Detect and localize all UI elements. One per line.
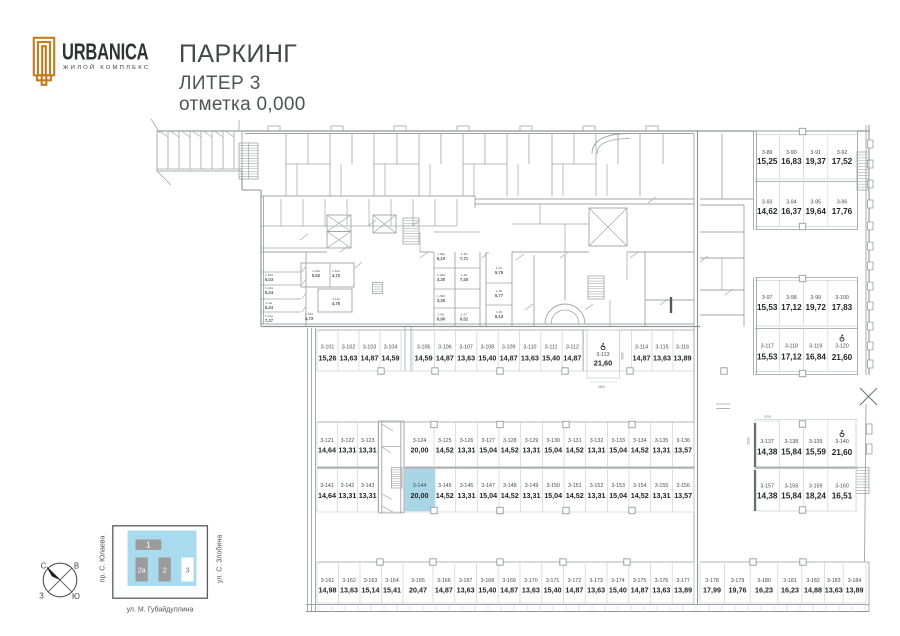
svg-text:21,60: 21,60 bbox=[594, 359, 613, 368]
svg-text:4,73: 4,73 bbox=[305, 316, 314, 321]
svg-text:13,89: 13,89 bbox=[674, 586, 692, 595]
svg-text:13,63: 13,63 bbox=[340, 354, 358, 363]
svg-text:13,31: 13,31 bbox=[523, 491, 541, 500]
svg-text:3-169: 3-169 bbox=[502, 578, 516, 584]
svg-text:14,64: 14,64 bbox=[318, 445, 336, 454]
svg-text:13,63: 13,63 bbox=[457, 354, 475, 363]
svg-text:15,04: 15,04 bbox=[479, 445, 497, 454]
svg-text:3-94: 3-94 bbox=[786, 199, 797, 205]
svg-text:3-164: 3-164 bbox=[385, 578, 399, 584]
svg-text:9,52: 9,52 bbox=[460, 317, 469, 322]
svg-text:15,53: 15,53 bbox=[757, 353, 778, 362]
svg-text:3-148: 3-148 bbox=[503, 483, 517, 489]
svg-text:3-100: 3-100 bbox=[835, 295, 849, 301]
svg-text:3-135: 3-135 bbox=[655, 438, 669, 444]
svg-text:15,40: 15,40 bbox=[478, 586, 496, 595]
svg-text:3-129: 3-129 bbox=[525, 438, 539, 444]
svg-text:3-160: 3-160 bbox=[835, 484, 849, 490]
svg-text:3-171: 3-171 bbox=[546, 578, 560, 584]
svg-text:15,04: 15,04 bbox=[609, 445, 627, 454]
svg-text:3-109: 3-109 bbox=[502, 345, 516, 351]
svg-text:3-147: 3-147 bbox=[481, 483, 495, 489]
svg-text:3-137: 3-137 bbox=[760, 439, 774, 445]
svg-text:5,52: 5,52 bbox=[312, 273, 321, 278]
svg-text:13,31: 13,31 bbox=[359, 445, 377, 454]
svg-text:13,63: 13,63 bbox=[457, 586, 475, 595]
svg-text:3-152: 3-152 bbox=[590, 483, 604, 489]
svg-text:3-121: 3-121 bbox=[320, 438, 334, 444]
svg-text:13,63: 13,63 bbox=[653, 354, 671, 363]
svg-text:17,52: 17,52 bbox=[832, 157, 853, 166]
svg-text:4,72: 4,72 bbox=[332, 273, 341, 278]
svg-text:14,52: 14,52 bbox=[501, 491, 519, 500]
svg-text:13,31: 13,31 bbox=[458, 491, 476, 500]
svg-text:3-95: 3-95 bbox=[810, 199, 821, 205]
svg-text:15,04: 15,04 bbox=[544, 445, 562, 454]
svg-text:14,88: 14,88 bbox=[804, 586, 822, 595]
svg-text:3-159: 3-159 bbox=[809, 484, 823, 490]
svg-text:3-89: 3-89 bbox=[762, 150, 773, 156]
svg-text:3-108: 3-108 bbox=[481, 345, 495, 351]
svg-text:6,90: 6,90 bbox=[437, 317, 446, 322]
svg-text:3-125: 3-125 bbox=[438, 438, 452, 444]
svg-text:3-113: 3-113 bbox=[596, 352, 609, 358]
svg-text:17,12: 17,12 bbox=[781, 353, 802, 362]
svg-text:5,77: 5,77 bbox=[495, 293, 504, 298]
svg-text:13,89: 13,89 bbox=[674, 354, 692, 363]
svg-text:13,31: 13,31 bbox=[523, 445, 541, 454]
svg-text:15,41: 15,41 bbox=[383, 586, 401, 595]
svg-text:3,30: 3,30 bbox=[437, 277, 446, 282]
svg-text:14,87: 14,87 bbox=[361, 354, 379, 363]
svg-text:17,12: 17,12 bbox=[781, 303, 802, 312]
svg-text:Ю: Ю bbox=[72, 592, 80, 601]
svg-text:15,40: 15,40 bbox=[609, 586, 627, 595]
svg-text:13,31: 13,31 bbox=[588, 445, 606, 454]
svg-text:3-128: 3-128 bbox=[503, 438, 517, 444]
svg-text:3-150: 3-150 bbox=[546, 483, 560, 489]
svg-text:3-178: 3-178 bbox=[705, 578, 719, 584]
svg-text:3-167: 3-167 bbox=[459, 578, 473, 584]
svg-text:13,31: 13,31 bbox=[359, 491, 377, 500]
svg-text:3-183: 3-183 bbox=[827, 578, 841, 584]
svg-text:З: З bbox=[39, 592, 44, 601]
svg-text:3-145: 3-145 bbox=[438, 483, 452, 489]
svg-text:3-180: 3-180 bbox=[757, 578, 771, 584]
svg-text:14,52: 14,52 bbox=[631, 445, 649, 454]
svg-text:3-126: 3-126 bbox=[460, 438, 474, 444]
svg-text:15,26: 15,26 bbox=[319, 354, 337, 363]
svg-text:3-120: 3-120 bbox=[835, 343, 849, 349]
svg-text:3-93: 3-93 bbox=[762, 199, 773, 205]
svg-text:пр. С. Юлаева: пр. С. Юлаева bbox=[100, 536, 107, 583]
svg-text:13,57: 13,57 bbox=[674, 445, 692, 454]
svg-text:14,87: 14,87 bbox=[435, 586, 453, 595]
svg-text:19,37: 19,37 bbox=[805, 157, 826, 166]
svg-text:3-149: 3-149 bbox=[525, 483, 539, 489]
svg-text:3-99: 3-99 bbox=[810, 295, 821, 301]
svg-text:13,31: 13,31 bbox=[458, 445, 476, 454]
svg-text:3-101: 3-101 bbox=[321, 345, 335, 351]
svg-text:3-166: 3-166 bbox=[437, 578, 451, 584]
svg-text:14,87: 14,87 bbox=[633, 354, 651, 363]
svg-text:14,59: 14,59 bbox=[382, 354, 400, 363]
svg-text:2: 2 bbox=[163, 565, 167, 574]
svg-text:3-119: 3-119 bbox=[809, 343, 822, 349]
svg-text:14,87: 14,87 bbox=[631, 586, 649, 595]
svg-text:3-132: 3-132 bbox=[590, 438, 604, 444]
svg-text:4,75: 4,75 bbox=[332, 301, 341, 306]
svg-text:3-107: 3-107 bbox=[459, 345, 473, 351]
svg-text:3-156: 3-156 bbox=[676, 483, 690, 489]
svg-text:3,30: 3,30 bbox=[437, 298, 446, 303]
svg-text:15,59: 15,59 bbox=[805, 448, 826, 457]
svg-text:3-157: 3-157 bbox=[760, 484, 774, 490]
svg-text:3-144: 3-144 bbox=[413, 483, 427, 489]
svg-text:15,14: 15,14 bbox=[362, 586, 380, 595]
svg-text:3-161: 3-161 bbox=[321, 578, 335, 584]
svg-text:15,40: 15,40 bbox=[544, 586, 562, 595]
svg-text:8,13: 8,13 bbox=[495, 314, 504, 319]
svg-text:3600: 3600 bbox=[598, 385, 605, 389]
svg-text:3-134: 3-134 bbox=[633, 438, 647, 444]
svg-text:15,84: 15,84 bbox=[781, 448, 802, 457]
svg-text:20,47: 20,47 bbox=[409, 586, 427, 595]
svg-text:1: 1 bbox=[146, 540, 151, 550]
svg-text:14,52: 14,52 bbox=[566, 491, 584, 500]
svg-text:3-106: 3-106 bbox=[438, 345, 452, 351]
svg-text:ул. М. Губайдуллина: ул. М. Губайдуллина bbox=[127, 606, 194, 614]
svg-text:14,52: 14,52 bbox=[501, 445, 519, 454]
svg-text:3-97: 3-97 bbox=[762, 295, 773, 301]
svg-text:3-181: 3-181 bbox=[783, 578, 797, 584]
svg-text:3-162: 3-162 bbox=[342, 578, 356, 584]
svg-text:16,37: 16,37 bbox=[781, 207, 802, 216]
svg-text:15,53: 15,53 bbox=[757, 303, 778, 312]
svg-text:14,38: 14,38 bbox=[757, 492, 778, 501]
svg-text:14,87: 14,87 bbox=[500, 586, 518, 595]
svg-text:13,31: 13,31 bbox=[653, 491, 671, 500]
svg-text:21,60: 21,60 bbox=[832, 353, 853, 362]
svg-text:15,04: 15,04 bbox=[609, 491, 627, 500]
svg-text:3-123: 3-123 bbox=[361, 438, 375, 444]
svg-text:17,99: 17,99 bbox=[703, 586, 721, 595]
svg-text:13,63: 13,63 bbox=[340, 586, 358, 595]
svg-text:3-133: 3-133 bbox=[611, 438, 625, 444]
svg-text:3-172: 3-172 bbox=[568, 578, 582, 584]
svg-text:13,63: 13,63 bbox=[652, 586, 670, 595]
svg-text:3-131: 3-131 bbox=[568, 438, 582, 444]
svg-text:6,10: 6,10 bbox=[437, 256, 446, 261]
svg-text:3-91: 3-91 bbox=[810, 150, 821, 156]
svg-text:14,64: 14,64 bbox=[318, 491, 336, 500]
svg-text:14,62: 14,62 bbox=[757, 207, 778, 216]
svg-text:3-168: 3-168 bbox=[481, 578, 495, 584]
svg-text:3-170: 3-170 bbox=[524, 578, 538, 584]
svg-text:7,40: 7,40 bbox=[460, 277, 469, 282]
svg-text:19,64: 19,64 bbox=[805, 207, 826, 216]
svg-text:14,87: 14,87 bbox=[563, 354, 581, 363]
svg-text:3-141: 3-141 bbox=[320, 483, 334, 489]
svg-text:2700: 2700 bbox=[764, 415, 771, 419]
svg-text:15,04: 15,04 bbox=[479, 491, 497, 500]
svg-text:17,83: 17,83 bbox=[832, 303, 853, 312]
svg-text:7,27: 7,27 bbox=[265, 318, 274, 323]
svg-text:3-105: 3-105 bbox=[417, 345, 431, 351]
svg-text:3-92: 3-92 bbox=[837, 150, 848, 156]
svg-text:3-173: 3-173 bbox=[589, 578, 603, 584]
svg-text:14,52: 14,52 bbox=[631, 491, 649, 500]
svg-text:3-182: 3-182 bbox=[806, 578, 820, 584]
svg-text:3-136: 3-136 bbox=[676, 438, 690, 444]
svg-text:3-127: 3-127 bbox=[481, 438, 495, 444]
svg-text:3-151: 3-151 bbox=[568, 483, 582, 489]
svg-text:3-116: 3-116 bbox=[676, 345, 689, 351]
svg-text:3-179: 3-179 bbox=[731, 578, 745, 584]
svg-text:3-104: 3-104 bbox=[384, 345, 398, 351]
svg-text:13,57: 13,57 bbox=[674, 491, 692, 500]
svg-text:15,25: 15,25 bbox=[757, 157, 778, 166]
svg-text:ул. С. Злобина: ул. С. Злобина bbox=[216, 535, 224, 583]
svg-text:16,23: 16,23 bbox=[781, 586, 799, 595]
svg-text:В: В bbox=[74, 562, 79, 571]
svg-text:13,31: 13,31 bbox=[338, 445, 356, 454]
svg-text:13,31: 13,31 bbox=[338, 491, 356, 500]
svg-text:19,76: 19,76 bbox=[729, 586, 747, 595]
svg-text:15,84: 15,84 bbox=[781, 492, 802, 501]
svg-text:5,24: 5,24 bbox=[265, 305, 274, 310]
svg-text:13,63: 13,63 bbox=[522, 586, 540, 595]
svg-text:3-138: 3-138 bbox=[785, 439, 799, 445]
svg-text:16,84: 16,84 bbox=[805, 353, 826, 362]
svg-text:3-184: 3-184 bbox=[848, 578, 862, 584]
svg-text:13,63: 13,63 bbox=[587, 586, 605, 595]
svg-text:7,71: 7,71 bbox=[460, 256, 469, 261]
svg-text:5,24: 5,24 bbox=[265, 290, 274, 295]
svg-text:3-139: 3-139 bbox=[809, 439, 823, 445]
svg-text:14,59: 14,59 bbox=[415, 354, 433, 363]
svg-text:3-114: 3-114 bbox=[635, 345, 648, 351]
svg-text:3-103: 3-103 bbox=[363, 345, 377, 351]
svg-text:5000: 5000 bbox=[747, 437, 751, 444]
svg-text:14,87: 14,87 bbox=[436, 354, 454, 363]
svg-text:3-98: 3-98 bbox=[786, 295, 797, 301]
svg-text:3-117: 3-117 bbox=[761, 343, 774, 349]
svg-text:15,40: 15,40 bbox=[478, 354, 496, 363]
svg-text:21,60: 21,60 bbox=[832, 448, 853, 457]
svg-text:3-111: 3-111 bbox=[545, 345, 558, 351]
svg-text:3-112: 3-112 bbox=[566, 345, 579, 351]
svg-text:3-174: 3-174 bbox=[611, 578, 625, 584]
svg-text:14,52: 14,52 bbox=[566, 445, 584, 454]
svg-text:3-176: 3-176 bbox=[655, 578, 669, 584]
svg-text:3-143: 3-143 bbox=[361, 483, 375, 489]
svg-text:5,75: 5,75 bbox=[495, 270, 504, 275]
svg-text:14,38: 14,38 bbox=[757, 448, 778, 457]
svg-text:3-142: 3-142 bbox=[341, 483, 355, 489]
svg-text:18,24: 18,24 bbox=[805, 492, 826, 501]
svg-text:14,98: 14,98 bbox=[319, 586, 337, 595]
svg-text:13,89: 13,89 bbox=[846, 586, 864, 595]
svg-text:2а: 2а bbox=[138, 565, 146, 574]
svg-text:16,23: 16,23 bbox=[755, 586, 773, 595]
svg-text:3-124: 3-124 bbox=[413, 438, 427, 444]
svg-text:3-102: 3-102 bbox=[342, 345, 356, 351]
svg-text:3-130: 3-130 bbox=[546, 438, 560, 444]
svg-text:20,00: 20,00 bbox=[411, 491, 429, 500]
svg-text:3-165: 3-165 bbox=[411, 578, 425, 584]
svg-text:3-163: 3-163 bbox=[364, 578, 378, 584]
svg-text:С: С bbox=[41, 562, 47, 571]
svg-text:16,51: 16,51 bbox=[832, 492, 853, 501]
svg-text:5,03: 5,03 bbox=[265, 277, 274, 282]
svg-text:19,72: 19,72 bbox=[805, 303, 826, 312]
svg-text:3-155: 3-155 bbox=[655, 483, 669, 489]
svg-text:17,76: 17,76 bbox=[832, 207, 853, 216]
svg-text:3: 3 bbox=[186, 565, 190, 574]
svg-text:3-153: 3-153 bbox=[611, 483, 625, 489]
svg-text:14,52: 14,52 bbox=[436, 445, 454, 454]
svg-text:13,63: 13,63 bbox=[521, 354, 539, 363]
svg-text:3-96: 3-96 bbox=[837, 199, 848, 205]
svg-text:20,00: 20,00 bbox=[411, 445, 429, 454]
svg-text:3-115: 3-115 bbox=[655, 345, 668, 351]
svg-text:15,40: 15,40 bbox=[542, 354, 560, 363]
svg-text:3-154: 3-154 bbox=[633, 483, 647, 489]
svg-text:15,04: 15,04 bbox=[544, 491, 562, 500]
svg-text:13,31: 13,31 bbox=[653, 445, 671, 454]
svg-text:3-175: 3-175 bbox=[633, 578, 647, 584]
svg-text:3-118: 3-118 bbox=[785, 343, 798, 349]
svg-text:13,31: 13,31 bbox=[588, 491, 606, 500]
svg-text:14,52: 14,52 bbox=[436, 491, 454, 500]
svg-text:3-146: 3-146 bbox=[460, 483, 474, 489]
svg-text:3-110: 3-110 bbox=[523, 345, 536, 351]
svg-text:3-140: 3-140 bbox=[835, 439, 849, 445]
svg-text:6000: 6000 bbox=[621, 352, 625, 359]
svg-text:3-177: 3-177 bbox=[676, 578, 690, 584]
svg-text:3-90: 3-90 bbox=[786, 150, 797, 156]
svg-text:3-158: 3-158 bbox=[785, 484, 799, 490]
svg-text:14,87: 14,87 bbox=[500, 354, 518, 363]
svg-text:3-122: 3-122 bbox=[341, 438, 355, 444]
svg-text:16,83: 16,83 bbox=[781, 157, 802, 166]
svg-text:13,63: 13,63 bbox=[825, 586, 843, 595]
svg-text:14,87: 14,87 bbox=[565, 586, 583, 595]
